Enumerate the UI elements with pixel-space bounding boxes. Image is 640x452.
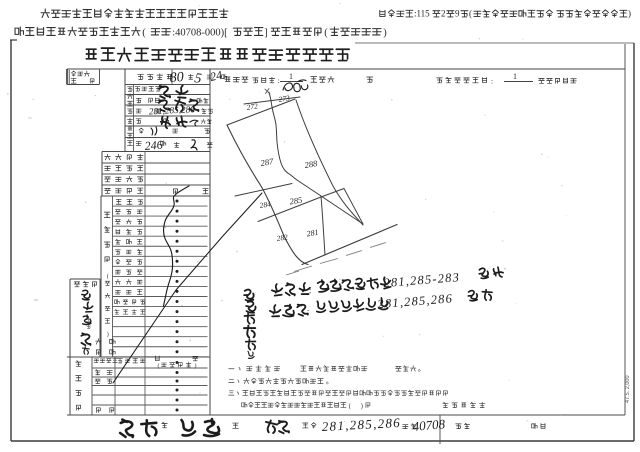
svg-text::: : [278,76,280,85]
svg-text:(: ( [158,363,160,370]
svg-text:246: 246 [144,137,163,153]
svg-text:284: 284 [259,199,272,210]
svg-text:1: 1 [513,72,517,81]
svg-text::: : [307,306,310,316]
svg-text:282: 282 [276,232,289,243]
svg-text:80: 80 [169,70,184,86]
svg-text::115: :115 [414,9,430,19]
svg-text:287: 287 [260,156,275,168]
svg-text:(: ( [469,9,472,19]
svg-text:(: ( [142,28,146,39]
svg-text:]: ] [264,28,268,39]
svg-text:): ) [383,28,387,39]
svg-text:273: 273 [278,93,291,104]
svg-text::: : [491,77,493,86]
svg-text:285: 285 [289,195,303,207]
svg-text:281: 281 [306,228,319,239]
svg-text:1: 1 [289,72,293,81]
svg-text:(: ( [107,273,109,280]
svg-text:288: 288 [304,158,319,170]
svg-text:): ) [628,9,631,19]
svg-text:(: ( [324,28,328,39]
svg-text:9: 9 [455,9,460,19]
svg-text:272: 272 [246,101,259,112]
svg-text::40708-000)[: :40708-000)[ [172,28,228,39]
svg-text:2: 2 [441,9,446,19]
svg-text:): ) [107,331,109,338]
svg-text:): ) [195,363,197,370]
svg-text:40708: 40708 [412,416,446,434]
svg-text:47.5. 2,000: 47.5. 2,000 [625,375,631,403]
svg-text::: : [309,285,312,295]
